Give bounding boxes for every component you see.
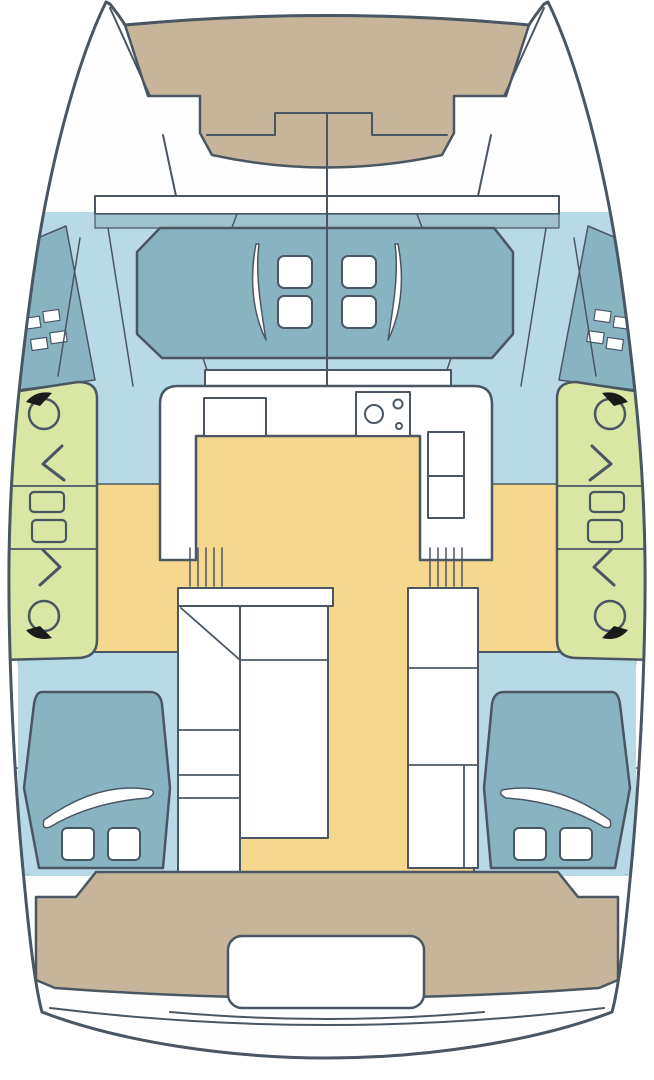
port-pillow xyxy=(108,828,140,860)
saloon-dinette xyxy=(240,606,328,838)
port-berth xyxy=(24,692,170,868)
deck-hatch xyxy=(342,296,376,328)
canvas xyxy=(0,0,654,1080)
deck-hatch xyxy=(278,296,312,328)
forward-cockpit-lounge xyxy=(137,228,513,358)
saloon-sideboard-port xyxy=(178,588,333,606)
starboard-pillow xyxy=(514,828,546,860)
tender-recess xyxy=(228,936,424,1008)
starboard-berth xyxy=(484,692,630,868)
port-pillow xyxy=(62,828,94,860)
starboard-step xyxy=(594,309,611,322)
catamaran-layout-diagram xyxy=(0,0,654,1080)
galley-sink xyxy=(204,398,266,436)
port-step xyxy=(31,337,48,350)
starboard-pillow xyxy=(560,828,592,860)
deck-hatch xyxy=(342,256,376,288)
starboard-hull-cabinets xyxy=(408,588,478,868)
port-step xyxy=(43,309,60,322)
starboard-step xyxy=(606,337,623,350)
port-hull-cabinets xyxy=(178,606,240,872)
deck-hatch xyxy=(278,256,312,288)
